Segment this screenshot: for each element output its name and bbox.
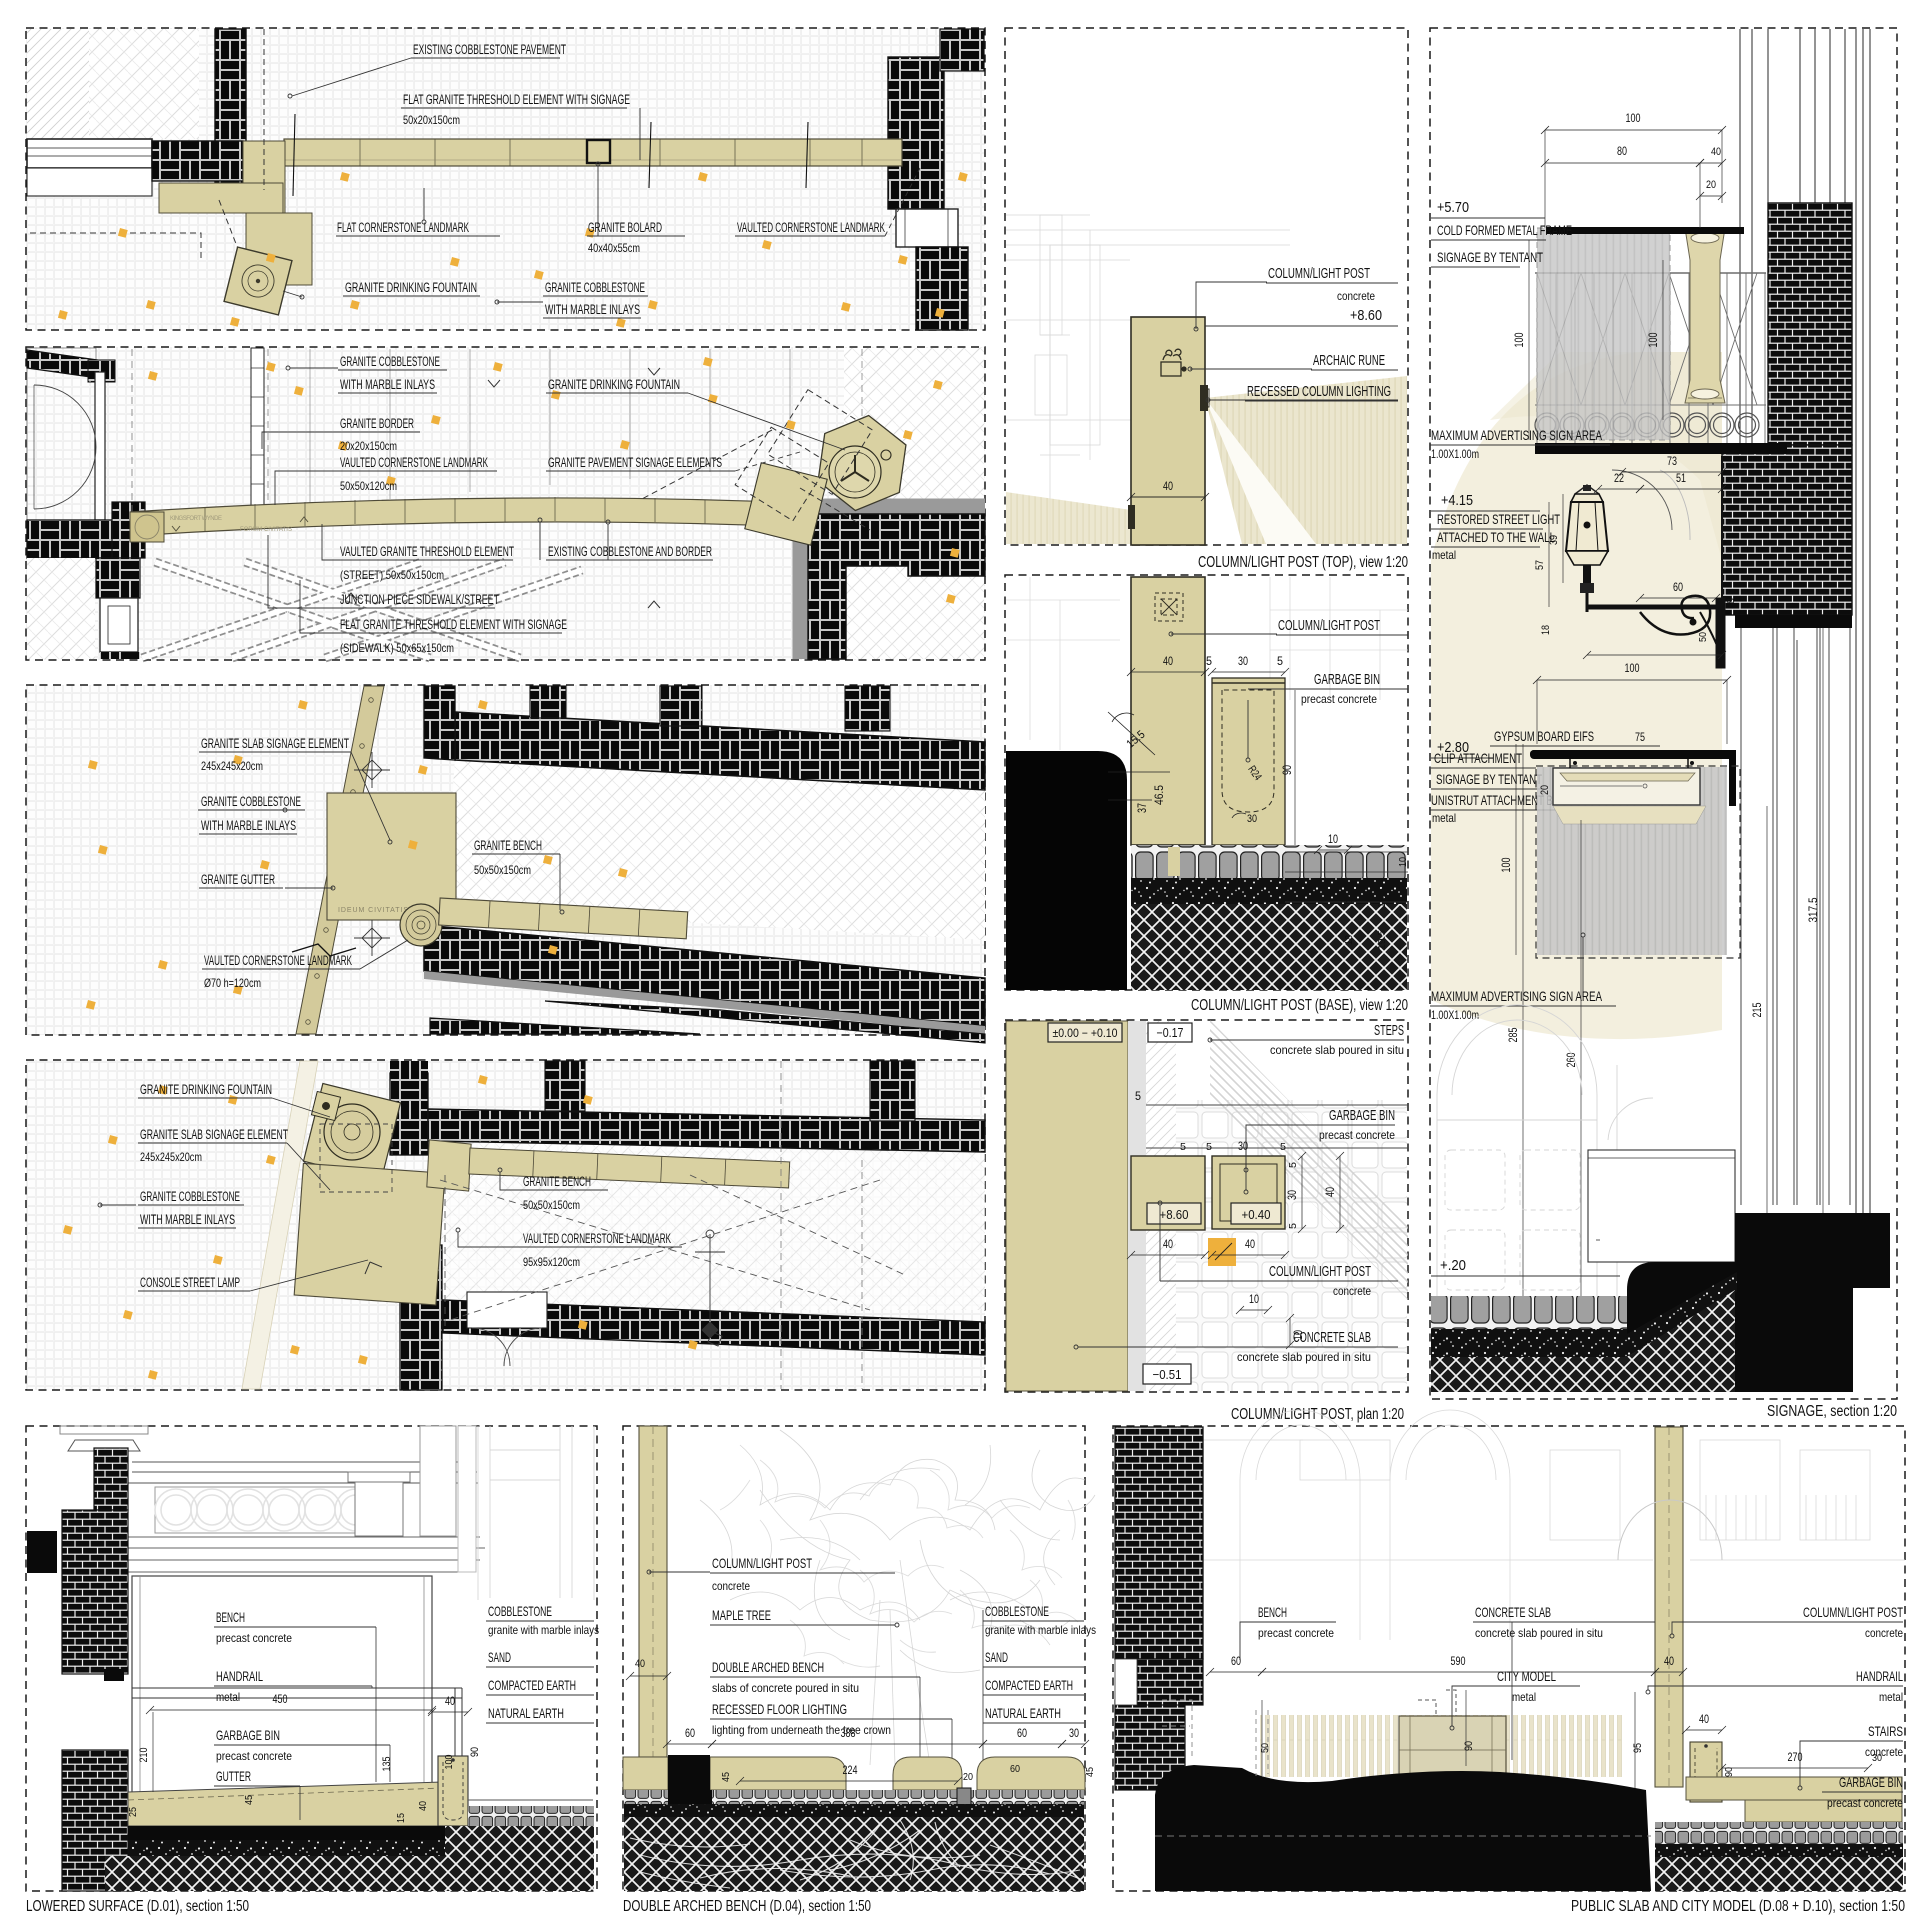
svg-text:50x50x120cm: 50x50x120cm	[340, 479, 397, 493]
svg-text:40: 40	[1163, 481, 1173, 493]
svg-text:60: 60	[1673, 582, 1683, 594]
svg-text:COMPACTED EARTH: COMPACTED EARTH	[985, 1677, 1073, 1693]
svg-text:COLUMN/LIGHT POST (BASE), view: COLUMN/LIGHT POST (BASE), view 1:20	[1191, 997, 1408, 1014]
svg-text:EXISTING COBBLESTONE AND BORDE: EXISTING COBBLESTONE AND BORDER	[548, 544, 712, 559]
svg-text:5: 5	[1180, 1141, 1186, 1153]
svg-text:CITY MODEL: CITY MODEL	[1497, 1668, 1556, 1684]
svg-text:1.00X1.00m: 1.00X1.00m	[1431, 447, 1479, 461]
svg-text:+.20: +.20	[1440, 1257, 1466, 1274]
svg-text:10: 10	[1249, 1294, 1259, 1306]
svg-text:39: 39	[1548, 535, 1560, 545]
svg-text:GRANITE DRINKING FOUNTAIN: GRANITE DRINKING FOUNTAIN	[345, 280, 477, 295]
svg-text:precast concrete: precast concrete	[1258, 1626, 1334, 1640]
svg-text:EXISTING COBBLESTONE PAVEMENT: EXISTING COBBLESTONE PAVEMENT	[413, 42, 566, 57]
svg-text:5: 5	[1280, 1141, 1286, 1153]
svg-text:Ø70 h=120cm: Ø70 h=120cm	[204, 976, 261, 990]
svg-text:precast concrete: precast concrete	[1319, 1128, 1395, 1142]
svg-text:590: 590	[1451, 1656, 1466, 1668]
svg-text:30: 30	[1069, 1728, 1079, 1740]
svg-text:19.5: 19.5	[1376, 930, 1388, 950]
svg-text:GRANITE COBBLESTONE: GRANITE COBBLESTONE	[545, 280, 645, 295]
svg-text:GRANITE PAVEMENT SIGNAGE ELEME: GRANITE PAVEMENT SIGNAGE ELEMENTS	[548, 455, 722, 470]
svg-text:CONCRETE SLAB: CONCRETE SLAB	[1475, 1604, 1551, 1620]
svg-text:5: 5	[1206, 1141, 1212, 1153]
svg-text:285: 285	[1508, 1028, 1520, 1043]
svg-text:210: 210	[138, 1748, 150, 1763]
svg-text:concrete: concrete	[1337, 289, 1375, 303]
svg-text:concrete: concrete	[1865, 1745, 1903, 1759]
svg-text:WITH MARBLE INLAYS: WITH MARBLE INLAYS	[340, 377, 435, 392]
svg-text:ATTACHED TO THE WALL: ATTACHED TO THE WALL	[1437, 529, 1555, 545]
svg-text:GRANITE COBBLESTONE: GRANITE COBBLESTONE	[140, 1189, 240, 1204]
svg-text:224: 224	[843, 1765, 858, 1777]
svg-text:NATURAL EARTH: NATURAL EARTH	[488, 1705, 564, 1721]
svg-text:30: 30	[1238, 656, 1248, 668]
svg-text:(SIDEWALK) 50x65x150cm: (SIDEWALK) 50x65x150cm	[340, 641, 454, 655]
svg-text:VAULTED CORNERSTONE LANDMARK: VAULTED CORNERSTONE LANDMARK	[340, 455, 488, 470]
svg-text:IDEUM CIVITATIS: IDEUM CIVITATIS	[338, 907, 408, 914]
svg-text:KINGSFORT WYNDE: KINGSFORT WYNDE	[170, 516, 222, 522]
svg-text:metal: metal	[1512, 1690, 1536, 1704]
svg-text:20: 20	[1539, 785, 1551, 795]
svg-text:precast concrete: precast concrete	[1301, 692, 1377, 706]
svg-text:5: 5	[1135, 1091, 1141, 1103]
svg-text:LOWERED SURFACE (D.01), sectio: LOWERED SURFACE (D.01), section 1:50	[26, 1898, 249, 1915]
svg-text:22: 22	[1614, 473, 1624, 485]
svg-text:95: 95	[1632, 1743, 1644, 1753]
svg-text:precast concrete: precast concrete	[1827, 1796, 1903, 1810]
svg-text:COLUMN/LIGHT POST: COLUMN/LIGHT POST	[1268, 266, 1370, 282]
svg-text:+0.40: +0.40	[1242, 1207, 1271, 1222]
svg-text:73: 73	[1667, 456, 1677, 468]
svg-text:STEPS: STEPS	[1374, 1023, 1404, 1039]
svg-text:WITH MARBLE INLAYS: WITH MARBLE INLAYS	[201, 818, 296, 833]
svg-text:WITH MARBLE INLAYS: WITH MARBLE INLAYS	[545, 302, 640, 317]
svg-text:STAIRS: STAIRS	[1868, 1723, 1903, 1739]
svg-text:15: 15	[395, 1813, 407, 1823]
svg-text:DOUBLE ARCHED BENCH (D.04), se: DOUBLE ARCHED BENCH (D.04), section 1:50	[623, 1898, 871, 1915]
svg-text:135: 135	[381, 1757, 393, 1772]
svg-text:COLUMN/LIGHT POST (TOP), view: COLUMN/LIGHT POST (TOP), view 1:20	[1198, 554, 1408, 571]
svg-text:metal: metal	[1432, 548, 1456, 562]
svg-text:GUTTER: GUTTER	[216, 1768, 251, 1784]
svg-text:GRANITE DRINKING FOUNTAIN: GRANITE DRINKING FOUNTAIN	[548, 377, 680, 392]
svg-text:1.00X1.00m: 1.00X1.00m	[1431, 1008, 1479, 1022]
svg-text:20x20x150cm: 20x20x150cm	[340, 439, 397, 453]
svg-text:SAND: SAND	[985, 1649, 1008, 1665]
svg-text:GRANITE GUTTER: GRANITE GUTTER	[201, 872, 275, 887]
svg-text:18: 18	[1343, 935, 1355, 945]
svg-text:60: 60	[1017, 1728, 1027, 1740]
svg-text:RESTORED STREET LIGHT: RESTORED STREET LIGHT	[1437, 511, 1560, 527]
svg-text:SAND: SAND	[488, 1649, 511, 1665]
svg-text:100: 100	[1648, 333, 1660, 348]
svg-text:metal: metal	[1879, 1690, 1903, 1704]
svg-text:MAXIMUM ADVERTISING SIGN AREA: MAXIMUM ADVERTISING SIGN AREA	[1431, 988, 1602, 1004]
svg-text:45: 45	[243, 1795, 255, 1805]
svg-text:FLAT CORNERSTONE LANDMARK: FLAT CORNERSTONE LANDMARK	[337, 220, 469, 235]
svg-text:5: 5	[1277, 656, 1283, 668]
svg-text:30: 30	[1872, 1752, 1882, 1764]
svg-text:40: 40	[1163, 1239, 1173, 1251]
svg-text:90: 90	[469, 1747, 481, 1757]
svg-text:CONCRETE SLAB: CONCRETE SLAB	[1293, 1330, 1371, 1346]
svg-text:VAULTED CORNERSTONE LANDMARK: VAULTED CORNERSTONE LANDMARK	[737, 220, 885, 235]
svg-text:50x50x150cm: 50x50x150cm	[523, 1198, 580, 1212]
svg-text:WITH MARBLE INLAYS: WITH MARBLE INLAYS	[140, 1212, 235, 1227]
svg-text:20: 20	[963, 1771, 973, 1783]
svg-text:40: 40	[1163, 656, 1173, 668]
svg-text:SIGNAGE, section 1:20: SIGNAGE, section 1:20	[1767, 1403, 1897, 1420]
svg-text:concrete: concrete	[1865, 1626, 1903, 1640]
svg-text:GRANITE COBBLESTONE: GRANITE COBBLESTONE	[201, 794, 301, 809]
svg-text:40: 40	[1325, 1187, 1337, 1197]
svg-text:215: 215	[1752, 1003, 1764, 1018]
svg-text:RECESSED FLOOR LIGHTING: RECESSED FLOOR LIGHTING	[712, 1701, 847, 1717]
svg-text:MAPLE TREE: MAPLE TREE	[712, 1607, 771, 1623]
svg-text:20: 20	[1706, 179, 1716, 191]
svg-text:57: 57	[1534, 560, 1546, 570]
svg-text:18: 18	[1343, 893, 1355, 903]
svg-text:60: 60	[1231, 1656, 1241, 1668]
svg-text:5: 5	[1287, 1162, 1299, 1168]
svg-text:100: 100	[444, 1754, 455, 1769]
svg-text:90: 90	[1282, 765, 1294, 775]
svg-text:95x95x120cm: 95x95x120cm	[523, 1255, 580, 1269]
svg-text:HANDRAIL: HANDRAIL	[216, 1668, 263, 1684]
svg-text:COLD FORMED METAL FRAME: COLD FORMED METAL FRAME	[1437, 222, 1572, 238]
svg-text:317.5: 317.5	[1808, 898, 1820, 923]
svg-text:lighting from underneath the t: lighting from underneath the tree crown	[712, 1723, 891, 1737]
svg-text:concrete slab poured in situ: concrete slab poured in situ	[1237, 1350, 1371, 1364]
svg-text:8: 8	[1725, 598, 1737, 604]
svg-text:−0.51: −0.51	[1153, 1367, 1182, 1382]
svg-text:COLUMN/LIGHT POST: COLUMN/LIGHT POST	[1278, 618, 1380, 634]
svg-text:precast concrete: precast concrete	[216, 1631, 292, 1645]
svg-text:5: 5	[1206, 656, 1212, 668]
svg-text:60: 60	[1010, 1763, 1020, 1775]
svg-text:40x40x55cm: 40x40x55cm	[588, 241, 640, 255]
svg-text:GRANITE COBBLESTONE: GRANITE COBBLESTONE	[340, 354, 440, 369]
svg-text:GARBAGE BIN: GARBAGE BIN	[1329, 1108, 1395, 1124]
svg-text:precast concrete: precast concrete	[216, 1749, 292, 1763]
svg-text:COMPACTED EARTH: COMPACTED EARTH	[488, 1677, 576, 1693]
svg-text:concrete: concrete	[712, 1579, 750, 1593]
svg-text:FLAT GRANITE THRESHOLD ELEMENT: FLAT GRANITE THRESHOLD ELEMENT WITH SIGN…	[403, 92, 630, 107]
svg-text:75: 75	[1635, 732, 1645, 744]
svg-text:5: 5	[1287, 1223, 1299, 1229]
svg-text:SIGNAGE BY TENTANT: SIGNAGE BY TENTANT	[1436, 771, 1542, 787]
svg-text:GRANITE BENCH: GRANITE BENCH	[474, 838, 542, 853]
svg-text:GARBAGE BIN: GARBAGE BIN	[1314, 672, 1380, 688]
svg-text:HANDRAIL: HANDRAIL	[1856, 1668, 1903, 1684]
svg-text:100: 100	[1514, 333, 1526, 348]
svg-text:50: 50	[1259, 1743, 1271, 1753]
svg-text:MAXIMUM ADVERTISING SIGN AREA: MAXIMUM ADVERTISING SIGN AREA	[1431, 427, 1602, 443]
svg-text:ARCHAIC RUNE: ARCHAIC RUNE	[1313, 353, 1385, 369]
svg-text:SIGNAGE BY TENTANT: SIGNAGE BY TENTANT	[1437, 249, 1543, 265]
svg-text:50x50x150cm: 50x50x150cm	[474, 863, 531, 877]
svg-text:metal: metal	[1432, 811, 1456, 825]
svg-text:90: 90	[1463, 1741, 1475, 1751]
svg-text:GRANITE SLAB SIGNAGE ELEMENT: GRANITE SLAB SIGNAGE ELEMENT	[201, 736, 349, 751]
svg-text:19.5: 19.5	[1376, 888, 1388, 908]
svg-text:COBBLESTONE: COBBLESTONE	[488, 1603, 552, 1619]
svg-text:COLUMN/LIGHT POST: COLUMN/LIGHT POST	[1269, 1264, 1371, 1280]
svg-text:VAULTED GRANITE THRESHOLD ELEM: VAULTED GRANITE THRESHOLD ELEMENT	[340, 544, 514, 559]
svg-text:100: 100	[1625, 663, 1640, 675]
svg-text:RECESSED COLUMN LIGHTING: RECESSED COLUMN LIGHTING	[1247, 384, 1391, 400]
svg-text:450: 450	[273, 1694, 288, 1706]
svg-text:45: 45	[1084, 1767, 1096, 1777]
svg-text:245x245x20cm: 245x245x20cm	[201, 759, 263, 773]
svg-text:COLUMN/LIGHT POST: COLUMN/LIGHT POST	[712, 1555, 812, 1571]
svg-text:DOUBLE ARCHED BENCH: DOUBLE ARCHED BENCH	[712, 1659, 824, 1675]
svg-text:NATURAL EARTH: NATURAL EARTH	[985, 1705, 1061, 1721]
svg-text:GRANITE DRINKING FOUNTAIN: GRANITE DRINKING FOUNTAIN	[140, 1082, 272, 1097]
svg-text:40: 40	[445, 1696, 455, 1708]
svg-text:100: 100	[1626, 113, 1641, 125]
svg-text:270: 270	[1788, 1752, 1803, 1764]
svg-text:50x20x150cm: 50x20x150cm	[403, 113, 460, 127]
svg-text:GARBAGE BIN: GARBAGE BIN	[1839, 1774, 1903, 1790]
svg-text:25: 25	[127, 1807, 139, 1817]
svg-text:COLUMN/LIGHT POST, plan 1:20: COLUMN/LIGHT POST, plan 1:20	[1231, 1406, 1404, 1423]
svg-text:(STREET) 50x50x150cm: (STREET) 50x50x150cm	[340, 568, 444, 582]
svg-text:granite with marble inlays: granite with marble inlays	[985, 1623, 1096, 1637]
svg-text:388: 388	[841, 1728, 856, 1740]
svg-text:+4.15: +4.15	[1441, 492, 1473, 509]
svg-text:GYPSUM BOARD EIFS: GYPSUM BOARD EIFS	[1494, 728, 1594, 744]
svg-text:BENCH: BENCH	[216, 1609, 245, 1625]
svg-text:concrete slab poured in situ: concrete slab poured in situ	[1270, 1043, 1404, 1057]
svg-text:CLIP ATTACHMENT: CLIP ATTACHMENT	[1434, 750, 1522, 766]
svg-text:40: 40	[1699, 1714, 1709, 1726]
svg-text:+8.60: +8.60	[1160, 1207, 1189, 1222]
svg-text:GRANITE BOLARD: GRANITE BOLARD	[588, 220, 662, 235]
svg-text:GARBAGE BIN: GARBAGE BIN	[216, 1727, 280, 1743]
svg-text:COBBLESTONE: COBBLESTONE	[985, 1603, 1049, 1619]
svg-text:FORUM CIVITATIS: FORUM CIVITATIS	[240, 527, 292, 533]
svg-text:30: 30	[1238, 1141, 1248, 1153]
svg-text:90: 90	[1723, 1767, 1735, 1777]
svg-text:−0.17: −0.17	[1157, 1026, 1184, 1040]
svg-text:VAULTED CORNERSTONE LANDMARK: VAULTED CORNERSTONE LANDMARK	[523, 1231, 671, 1246]
svg-text:245x245x20cm: 245x245x20cm	[140, 1150, 202, 1164]
svg-text:metal: metal	[216, 1690, 240, 1704]
svg-text:GRANITE BORDER: GRANITE BORDER	[340, 416, 414, 431]
svg-text:45: 45	[720, 1772, 732, 1782]
svg-text:concrete slab poured in situ: concrete slab poured in situ	[1475, 1626, 1603, 1640]
svg-text:+5.70: +5.70	[1437, 199, 1469, 216]
svg-text:granite with marble inlays: granite with marble inlays	[488, 1623, 599, 1637]
svg-text:PUBLIC SLAB AND CITY MODEL (D.: PUBLIC SLAB AND CITY MODEL (D.08 + D.10)…	[1571, 1898, 1905, 1915]
svg-text:40: 40	[1711, 146, 1721, 158]
svg-text:40: 40	[1245, 1239, 1255, 1251]
svg-text:46.5: 46.5	[1154, 785, 1166, 805]
svg-text:FLAT GRANITE THRESHOLD ELEMENT: FLAT GRANITE THRESHOLD ELEMENT WITH SIGN…	[340, 617, 567, 632]
svg-text:CONSOLE STREET LAMP: CONSOLE STREET LAMP	[140, 1275, 240, 1290]
svg-text:±0.00 − +0.10: ±0.00 − +0.10	[1053, 1028, 1118, 1040]
svg-text:BENCH: BENCH	[1258, 1604, 1287, 1620]
svg-text:100: 100	[1501, 858, 1513, 873]
svg-text:JUNCTION PIECE SIDEWALK/STREET: JUNCTION PIECE SIDEWALK/STREET	[340, 592, 499, 607]
svg-text:40: 40	[635, 1658, 645, 1670]
svg-text:concrete: concrete	[1333, 1284, 1371, 1298]
svg-text:30: 30	[1247, 813, 1257, 825]
svg-text:80: 80	[1617, 146, 1627, 158]
svg-text:10: 10	[1328, 834, 1338, 846]
svg-text:GRANITE SLAB SIGNAGE ELEMENT: GRANITE SLAB SIGNAGE ELEMENT	[140, 1127, 288, 1142]
svg-text:10: 10	[1397, 857, 1409, 867]
svg-text:51: 51	[1676, 473, 1686, 485]
svg-text:COLUMN/LIGHT POST: COLUMN/LIGHT POST	[1803, 1604, 1903, 1620]
svg-text:slabs of concrete poured in si: slabs of concrete poured in situ	[712, 1681, 859, 1695]
svg-text:GRANITE BENCH: GRANITE BENCH	[523, 1174, 591, 1189]
svg-text:50: 50	[1698, 632, 1709, 642]
svg-text:60: 60	[685, 1728, 695, 1740]
svg-text:+8.60: +8.60	[1350, 307, 1382, 324]
svg-text:37: 37	[1137, 803, 1149, 813]
svg-text:40: 40	[417, 1801, 429, 1811]
svg-text:18: 18	[1540, 625, 1552, 635]
svg-text:40: 40	[1664, 1656, 1674, 1668]
svg-text:30: 30	[1287, 1190, 1299, 1200]
svg-text:VAULTED CORNERSTONE LANDMARK: VAULTED CORNERSTONE LANDMARK	[204, 953, 352, 968]
